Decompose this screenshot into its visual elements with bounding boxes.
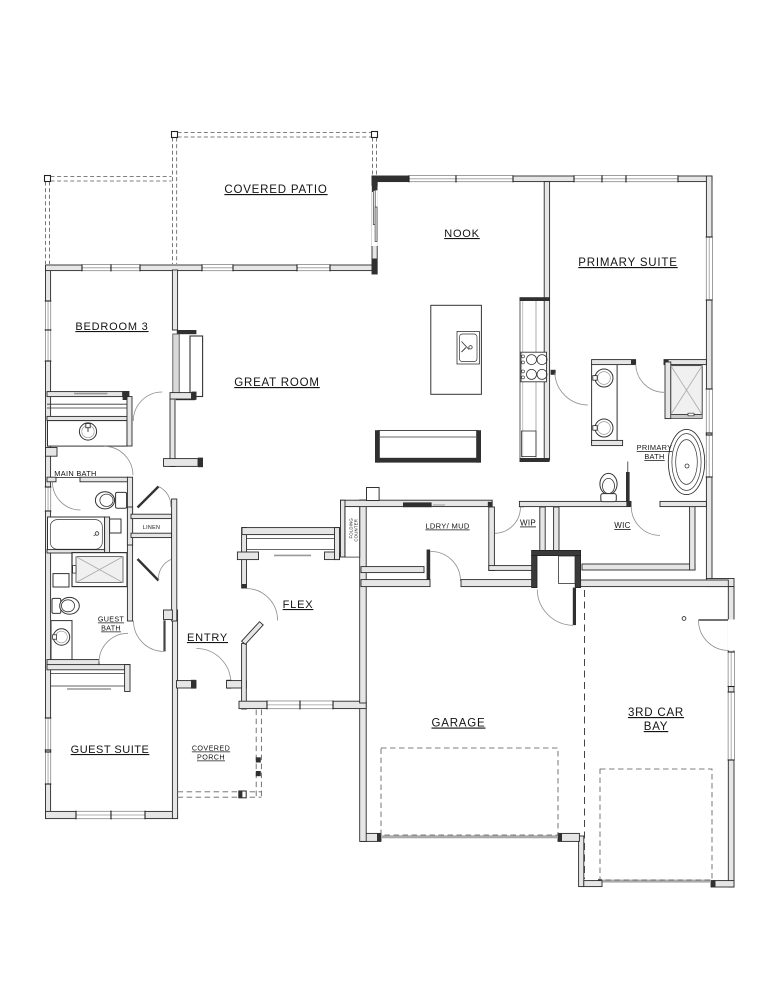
svg-text:GREAT ROOM: GREAT ROOM: [234, 377, 320, 389]
svg-text:WIC: WIC: [614, 521, 630, 530]
svg-text:COVERED PATIO: COVERED PATIO: [224, 184, 327, 196]
svg-text:BATH: BATH: [101, 624, 121, 633]
svg-text:WIP: WIP: [520, 519, 536, 528]
svg-text:GUEST: GUEST: [98, 615, 125, 624]
svg-text:GARAGE: GARAGE: [431, 718, 485, 730]
svg-text:COVERED: COVERED: [192, 744, 230, 753]
svg-text:BAY: BAY: [644, 721, 669, 733]
svg-text:LDRY/ MUD: LDRY/ MUD: [425, 522, 470, 531]
svg-text:ENTRY: ENTRY: [187, 632, 228, 644]
svg-text:PRIMARY: PRIMARY: [637, 443, 673, 452]
svg-text:3RD CAR: 3RD CAR: [628, 707, 684, 719]
svg-text:BEDROOM 3: BEDROOM 3: [75, 321, 148, 333]
svg-text:GUEST SUITE: GUEST SUITE: [71, 744, 150, 756]
svg-text:FLEX: FLEX: [283, 599, 314, 611]
svg-text:PRIMARY SUITE: PRIMARY SUITE: [578, 257, 677, 269]
svg-text:NOOK: NOOK: [444, 228, 480, 240]
svg-text:LINEN: LINEN: [143, 525, 160, 531]
svg-text:COUNTER: COUNTER: [353, 519, 358, 542]
svg-text:MAIN BATH: MAIN BATH: [54, 469, 96, 478]
svg-text:BATH: BATH: [644, 452, 664, 461]
svg-text:PORCH: PORCH: [197, 753, 225, 762]
